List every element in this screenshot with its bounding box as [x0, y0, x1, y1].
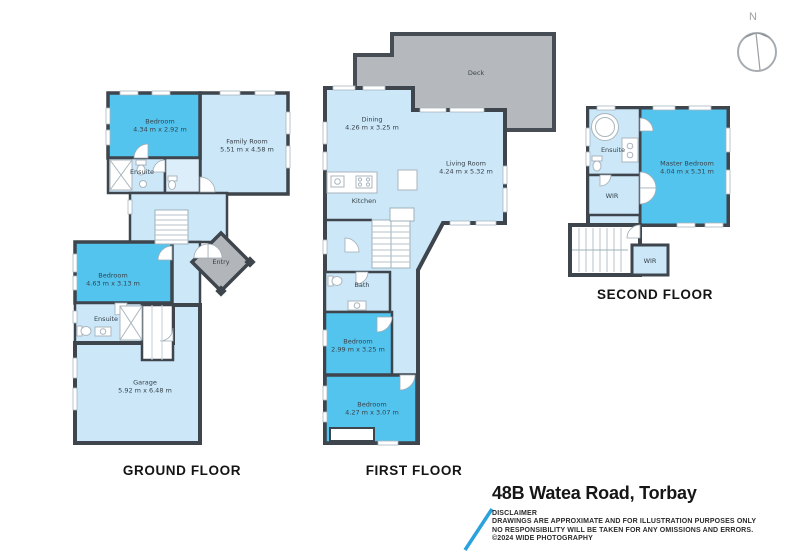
- room-label-entry: Entry: [212, 258, 229, 266]
- room-label-ensuite2: Ensuite: [94, 315, 118, 323]
- room-label-bedroom3: Bedroom2.99 m x 3.25 m: [331, 338, 385, 355]
- room-label-bedroom4: Bedroom4.27 m x 3.07 m: [345, 401, 399, 418]
- disclaimer-line: NO RESPONSIBILITY WILL BE TAKEN FOR ANY …: [492, 527, 756, 535]
- disclaimer-block: DISCLAIMER DRAWINGS ARE APPROXIMATE AND …: [492, 510, 756, 543]
- disclaimer-line: ©2024 WIDE PHOTOGRAPHY: [492, 535, 756, 543]
- closet-area: [142, 305, 173, 360]
- room-label-bath: Bath: [354, 281, 369, 289]
- room-label-bedroom1: Bedroom4.34 m x 2.92 m: [133, 118, 187, 135]
- stove-icon: [356, 176, 372, 188]
- stairs: [155, 210, 188, 244]
- room-label-garage: Garage5.92 m x 6.48 m: [118, 379, 172, 396]
- room-label-wir2: WIR: [644, 257, 657, 265]
- room-label-wir1: WIR: [606, 192, 619, 200]
- toilet-icon: [592, 156, 602, 161]
- room-label-deck: Deck: [468, 69, 484, 77]
- brand-slash-icon: [462, 506, 496, 552]
- disclaimer-line: DRAWINGS ARE APPROXIMATE AND FOR ILLUSTR…: [492, 518, 756, 526]
- second-floor-plan: [565, 100, 750, 290]
- first-floor-plan: [320, 30, 565, 462]
- room-label-living-room: Living Room4.24 m x 5.32 m: [439, 160, 493, 177]
- island-counter: [398, 170, 417, 190]
- room-label-family-room: Family Room5.51 m x 4.58 m: [220, 138, 274, 155]
- address-title: 48B Watea Road, Torbay: [492, 483, 697, 504]
- room-label-ensuite3: Ensuite: [601, 146, 625, 154]
- room-label-kitchen: Kitchen: [352, 197, 376, 205]
- room-label-ensuite1: Ensuite: [130, 168, 154, 176]
- disclaimer-title: DISCLAIMER: [492, 510, 756, 518]
- room-label-master-bedroom: Master Bedroom4.04 m x 5.31 m: [660, 160, 714, 177]
- toilet-icon: [136, 160, 146, 165]
- room-label-bedroom2: Bedroom4.63 m x 3.13 m: [86, 272, 140, 289]
- kitchen-counter: [327, 170, 417, 193]
- wardrobe: [330, 428, 374, 441]
- floorplan-canvas: N: [0, 0, 800, 560]
- basin-icon: [140, 181, 147, 188]
- first-floor-title: FIRST FLOOR: [320, 463, 508, 478]
- second-floor-title: SECOND FLOOR: [565, 287, 745, 302]
- north-compass-icon: [733, 16, 781, 74]
- room-label-dining: Dining4.26 m x 3.25 m: [345, 116, 399, 133]
- ground-floor-title: GROUND FLOOR: [72, 463, 292, 478]
